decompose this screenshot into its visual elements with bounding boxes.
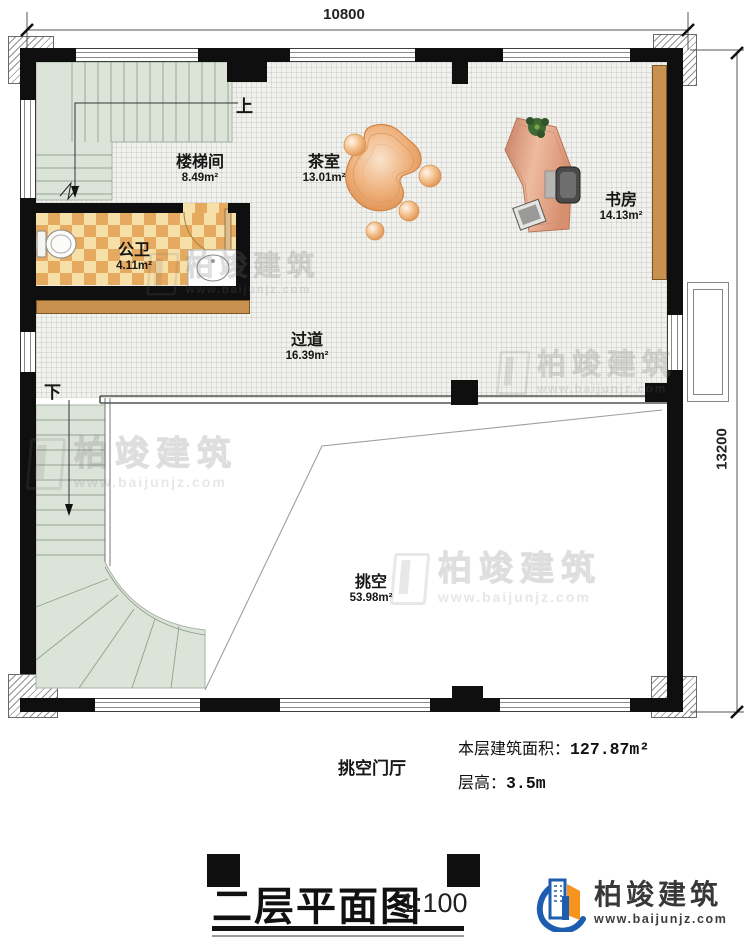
- window-band: [500, 698, 630, 712]
- column-marker: [447, 854, 480, 887]
- wall-segment: [20, 698, 95, 712]
- railing-pier: [451, 380, 478, 405]
- wall-segment: [20, 198, 36, 332]
- dimension-top: 10800: [323, 6, 365, 23]
- plan-scale: 1:100: [400, 888, 468, 919]
- title-underline-thin: [212, 935, 464, 937]
- wall-segment: [667, 370, 683, 712]
- floor-plan-canvas: 10800 13200 上 下 楼梯间 8.49m² 茶室 13.01m² 书房…: [0, 0, 750, 950]
- wall-segment: [667, 48, 683, 315]
- floor-area-note: 本层建筑面积：127.87m²: [458, 735, 649, 759]
- room-label-void: 挑空 53.98m²: [350, 574, 393, 605]
- room-label-stairwell: 楼梯间 8.49m²: [176, 154, 224, 185]
- bathroom-door-threshold: [183, 203, 228, 213]
- room-label-study: 书房 14.13m²: [600, 192, 643, 223]
- company-logo-icon: [534, 874, 588, 932]
- watermark: 柏竣建筑 www.baijunjz.com: [28, 437, 238, 490]
- wall-segment: [430, 698, 500, 712]
- floor-height-note: 层高：3.5m: [458, 769, 546, 793]
- wall-segment: [630, 698, 683, 712]
- window-band: [503, 48, 630, 62]
- hall-label: 挑空门厅: [338, 754, 406, 779]
- watermark: 柏竣建筑 www.baijunjz.com: [392, 552, 602, 605]
- stairs-down-label: 下: [44, 378, 61, 403]
- wall-pier: [452, 686, 483, 698]
- wall-segment: [200, 698, 280, 712]
- bathroom-wall: [33, 203, 183, 213]
- wall-segment: [20, 372, 36, 674]
- window-band: [95, 698, 200, 712]
- window-band: [20, 332, 36, 372]
- stairs-up-label: 上: [236, 92, 253, 117]
- stairs-down: [36, 398, 205, 688]
- room-label-bathroom: 公卫 4.11m²: [116, 242, 152, 273]
- watermark-logo-icon: [390, 553, 431, 605]
- room-label-tea-room: 茶室 13.01m²: [303, 154, 346, 185]
- bay-window-inner: [693, 289, 723, 395]
- wall-pier: [227, 62, 267, 82]
- wall-pier: [452, 62, 468, 84]
- window-band: [20, 100, 36, 198]
- window-band: [76, 48, 198, 62]
- company-logo-text: 柏竣建筑 www.baijunjz.com: [594, 881, 727, 926]
- wall-segment: [20, 48, 36, 100]
- bathroom-wall: [33, 286, 250, 300]
- wall-pier: [645, 383, 667, 402]
- window-band: [280, 698, 430, 712]
- room-label-corridor: 过道 16.39m²: [286, 332, 329, 363]
- cabinet-strip: [36, 300, 250, 314]
- window-band: [290, 48, 415, 62]
- window-band: [667, 315, 683, 370]
- company-logo: 柏竣建筑 www.baijunjz.com: [534, 874, 727, 932]
- title-underline: [212, 926, 464, 931]
- dimension-right: 13200: [714, 428, 731, 470]
- bookshelf-strip: [652, 65, 667, 280]
- void-outline: [205, 410, 662, 690]
- wall-segment: [415, 48, 503, 62]
- plan-title: 二层平面图: [212, 874, 422, 932]
- wall-segment: [198, 48, 290, 62]
